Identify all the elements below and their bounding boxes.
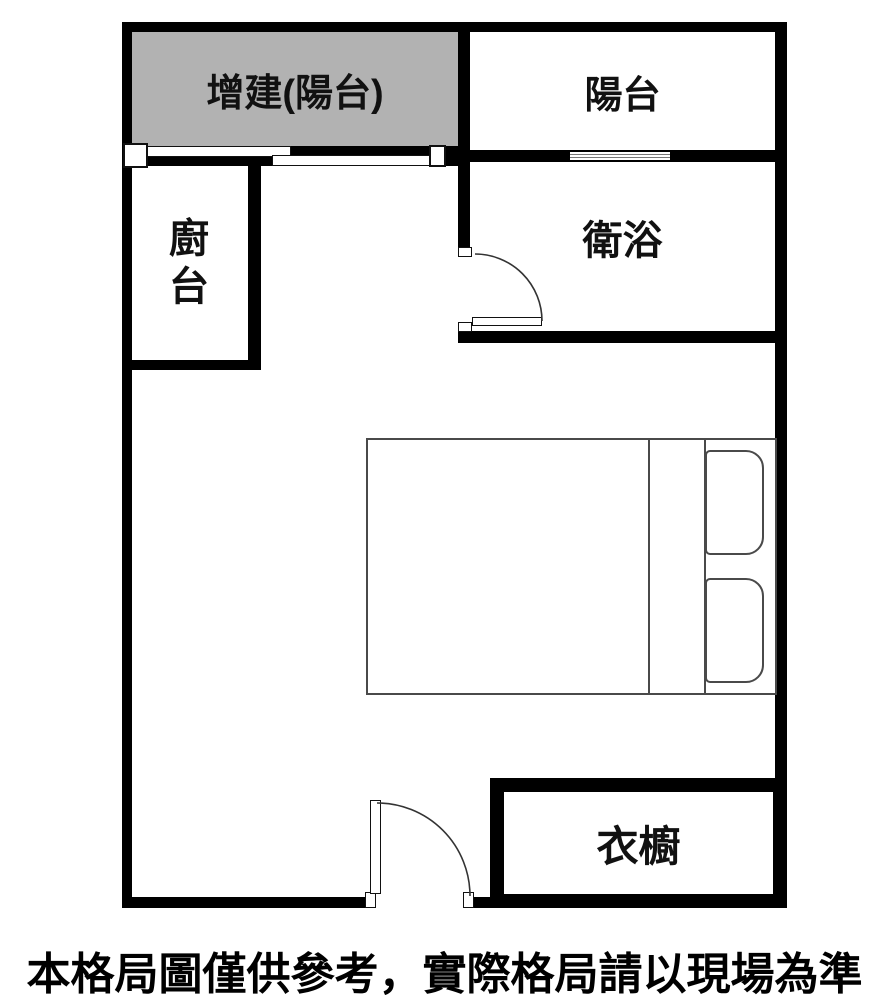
- entrance-door-jamb-left: [365, 892, 376, 908]
- sliding-door-panel-left: [145, 146, 291, 157]
- caption: 本格局圖僅供參考，實際格局請以現場為準: [0, 938, 889, 1002]
- wall-bottom-left-segment: [122, 897, 367, 908]
- bed-pillow-bottom: [705, 578, 764, 683]
- sliding-door-jamb-right: [429, 145, 446, 167]
- kitchen-label-area: 廚台: [155, 190, 215, 340]
- bathroom-label: 衛浴: [583, 208, 663, 266]
- balcony-window: [570, 150, 670, 162]
- bed-pillow-top: [705, 450, 764, 555]
- balcony-label: 陽台: [584, 64, 660, 119]
- wall-kitchen-right: [248, 157, 261, 370]
- wall-balcony-divider-right: [670, 150, 787, 162]
- wardrobe-label: 衣櫥: [596, 813, 680, 874]
- wall-center-vertical: [458, 22, 470, 250]
- wall-kitchen-bottom: [122, 360, 261, 370]
- room-wardrobe: 衣櫥: [490, 778, 787, 908]
- wall-balcony-divider-left: [470, 150, 570, 162]
- window-pane-line: [570, 157, 670, 158]
- bathroom-door-leaf: [472, 317, 542, 326]
- entrance-door-jamb-right: [463, 892, 474, 908]
- sliding-door-panel-right: [272, 155, 432, 166]
- bathroom-door-jamb-bottom: [458, 322, 472, 332]
- wall-top: [122, 22, 787, 32]
- entrance-door-arc: [377, 803, 470, 896]
- window-pane-line: [570, 154, 670, 155]
- wall-bathroom-bottom: [458, 331, 775, 343]
- addition-balcony-label: 增建(陽台): [206, 62, 383, 117]
- floor-plan: 衣櫥 增建(陽台) 陽台 廚台 衛浴 本格局圖僅供參考，實際格局請以現場為準: [0, 0, 889, 1003]
- kitchen-label: 廚台: [156, 217, 214, 313]
- entrance-door-leaf: [370, 800, 381, 894]
- bed-fold-line: [648, 439, 650, 694]
- addition-balcony-label-area: 增建(陽台): [132, 32, 458, 147]
- bathroom-label-area: 衛浴: [470, 162, 775, 312]
- balcony-label-area: 陽台: [470, 32, 775, 150]
